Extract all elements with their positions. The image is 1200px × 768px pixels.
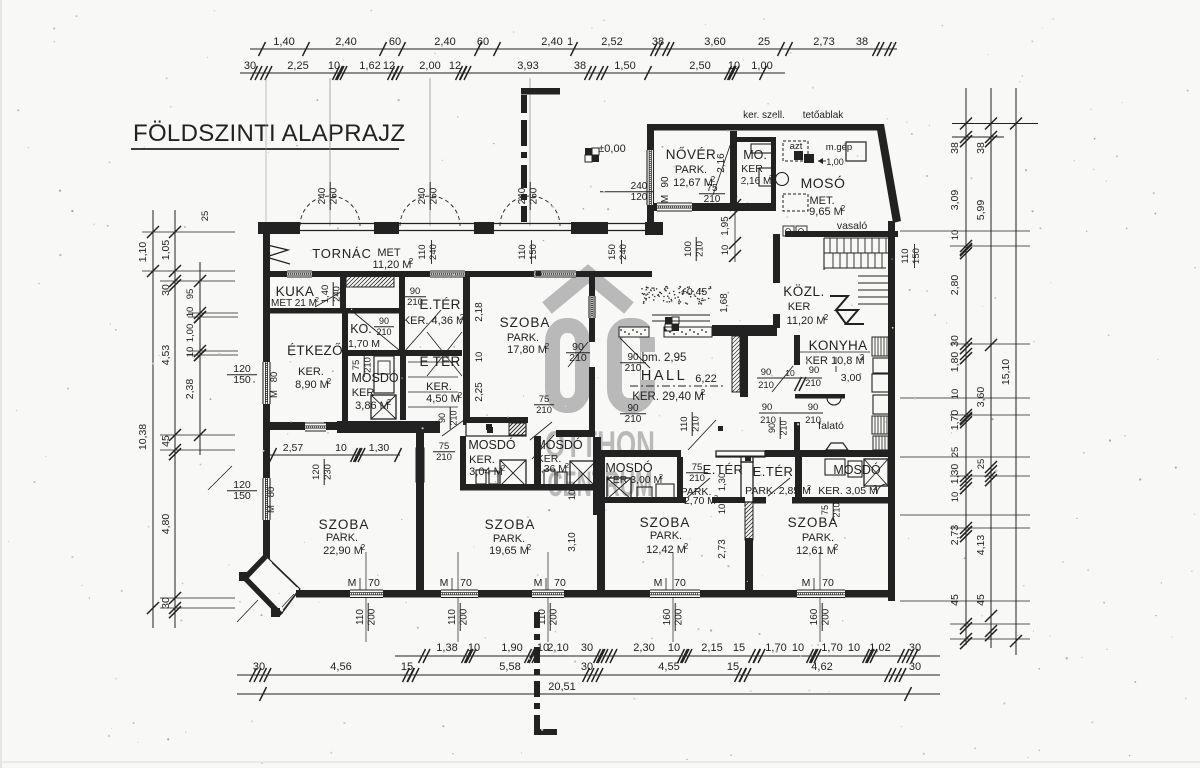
svg-text:4,50 M: 4,50 M	[426, 393, 460, 405]
svg-text:240: 240	[417, 187, 428, 204]
svg-text:HALL: HALL	[641, 368, 687, 384]
svg-text:2,73: 2,73	[717, 539, 728, 559]
svg-text:120: 120	[233, 363, 251, 375]
svg-text:2: 2	[873, 483, 877, 492]
svg-text:15: 15	[727, 661, 739, 673]
svg-text:38: 38	[949, 142, 961, 154]
svg-text:m.gép: m.gép	[826, 142, 852, 153]
svg-text:1,80: 1,80	[949, 352, 961, 373]
svg-text:110: 110	[417, 244, 428, 259]
svg-text:1,70: 1,70	[821, 642, 842, 654]
svg-text:2: 2	[501, 464, 506, 473]
svg-text:75: 75	[820, 505, 830, 515]
svg-text:10: 10	[950, 389, 961, 400]
svg-text:10: 10	[335, 442, 347, 454]
svg-text:PARK.: PARK.	[650, 530, 682, 542]
svg-text:KONYHA: KONYHA	[809, 338, 868, 353]
svg-text:2,73: 2,73	[949, 525, 961, 546]
svg-text:ÉTKEZŐ: ÉTKEZŐ	[287, 343, 343, 358]
svg-text:2: 2	[387, 398, 392, 407]
svg-text:10,38: 10,38	[137, 424, 149, 450]
svg-text:PARK.: PARK.	[675, 164, 707, 176]
svg-text:110: 110	[537, 609, 548, 625]
svg-text:45: 45	[160, 435, 172, 447]
svg-text:1,10: 1,10	[137, 242, 149, 263]
svg-text:PARK.: PARK.	[507, 332, 539, 344]
svg-text:2,40: 2,40	[541, 36, 562, 48]
svg-text:KUKA: KUKA	[276, 284, 315, 299]
svg-text:70: 70	[368, 577, 380, 589]
svg-text:2,00: 2,00	[419, 60, 440, 72]
svg-text:bm. 2,95: bm. 2,95	[642, 352, 687, 364]
svg-text:KÖZL.: KÖZL.	[783, 284, 825, 299]
svg-text:210: 210	[407, 297, 423, 308]
svg-text:160: 160	[662, 608, 673, 625]
svg-text:10: 10	[950, 492, 961, 503]
svg-text:5,99: 5,99	[975, 200, 987, 221]
svg-text:70: 70	[554, 577, 566, 589]
svg-text:2,16 M: 2,16 M	[741, 176, 772, 187]
svg-text:KO.: KO.	[350, 322, 372, 336]
svg-text:2: 2	[460, 313, 465, 322]
svg-text:110: 110	[517, 244, 528, 259]
svg-text:3,60: 3,60	[704, 36, 725, 48]
svg-text:12: 12	[449, 60, 461, 72]
svg-text:210: 210	[625, 363, 642, 374]
svg-text:PARK.: PARK.	[326, 532, 358, 544]
svg-text:75: 75	[351, 360, 362, 371]
svg-text:15: 15	[733, 642, 745, 654]
svg-text:E.TÉR: E.TÉR	[753, 464, 794, 479]
svg-text:240: 240	[631, 181, 648, 192]
svg-text:120: 120	[311, 464, 322, 480]
svg-text:2: 2	[361, 543, 366, 552]
svg-text:75: 75	[539, 394, 550, 405]
svg-text:1,70: 1,70	[949, 410, 961, 431]
svg-text:100: 100	[683, 241, 694, 257]
svg-text:25: 25	[200, 211, 211, 222]
svg-text:M: M	[440, 577, 449, 589]
svg-text:150: 150	[911, 248, 922, 264]
svg-text:10: 10	[328, 60, 340, 72]
svg-text:±0,00: ±0,00	[598, 143, 625, 155]
svg-text:1,30: 1,30	[717, 473, 728, 492]
svg-text:30: 30	[949, 335, 961, 347]
svg-text:80: 80	[266, 487, 277, 498]
svg-text:120: 120	[631, 192, 648, 203]
svg-text:2,40: 2,40	[335, 36, 356, 48]
svg-text:10: 10	[848, 642, 860, 654]
svg-text:3,60: 3,60	[975, 387, 987, 408]
svg-text:KER 10,8 M: KER 10,8 M	[805, 355, 864, 367]
svg-text:2,70 M: 2,70 M	[684, 495, 716, 507]
svg-text:2,57: 2,57	[283, 442, 304, 454]
svg-text:38: 38	[856, 36, 868, 48]
svg-text:10: 10	[567, 490, 578, 501]
svg-text:TORNÁC: TORNÁC	[312, 246, 371, 261]
svg-text:4,56: 4,56	[330, 661, 351, 673]
svg-text:SZOBA: SZOBA	[640, 515, 691, 530]
svg-text:11,20 M: 11,20 M	[787, 315, 826, 327]
svg-text:1,50: 1,50	[614, 60, 635, 72]
svg-text:2: 2	[834, 543, 839, 552]
svg-text:2: 2	[684, 542, 689, 551]
svg-text:E.TÉR: E.TÉR	[419, 297, 460, 312]
svg-text:MET: MET	[377, 247, 401, 259]
svg-text:2,30: 2,30	[633, 642, 654, 654]
svg-text:NŐVÉR: NŐVÉR	[666, 147, 717, 162]
svg-text:210: 210	[376, 327, 391, 337]
svg-text:2: 2	[714, 493, 718, 502]
svg-text:M: M	[654, 577, 663, 589]
svg-text:1,38: 1,38	[436, 642, 457, 654]
svg-text:15,10: 15,10	[1000, 359, 1012, 385]
svg-text:160: 160	[809, 608, 820, 625]
svg-text:KER.: KER.	[469, 454, 495, 466]
svg-text:95: 95	[185, 289, 196, 300]
svg-text:1,05: 1,05	[160, 240, 172, 261]
svg-text:90: 90	[761, 367, 772, 378]
svg-text:10: 10	[720, 245, 731, 256]
svg-text:90: 90	[762, 402, 773, 413]
svg-text:2: 2	[860, 353, 865, 362]
svg-text:10: 10	[717, 504, 728, 515]
svg-text:90: 90	[627, 403, 639, 414]
svg-text:210: 210	[569, 352, 587, 364]
svg-text:2: 2	[545, 342, 550, 351]
svg-text:150: 150	[607, 244, 618, 260]
svg-text:6,22: 6,22	[695, 373, 716, 385]
svg-text:M: M	[802, 577, 811, 589]
svg-text:1: 1	[567, 36, 573, 48]
svg-text:2,38: 2,38	[184, 379, 196, 400]
svg-text:2,52: 2,52	[601, 36, 622, 48]
svg-text:3,86 M: 3,86 M	[355, 400, 389, 412]
svg-text:MOSDÓ: MOSDÓ	[468, 437, 516, 452]
svg-text:22,90 M: 22,90 M	[323, 545, 363, 557]
svg-text:2,80: 2,80	[949, 275, 961, 296]
svg-text:4,53: 4,53	[160, 345, 172, 366]
svg-text:1,90: 1,90	[501, 642, 522, 654]
svg-text:2: 2	[824, 313, 829, 322]
svg-text:210: 210	[536, 405, 552, 416]
svg-text:110: 110	[355, 609, 366, 625]
svg-text:20,51: 20,51	[548, 681, 576, 693]
svg-text:10: 10	[668, 642, 680, 654]
svg-text:2,50: 2,50	[689, 60, 710, 72]
svg-text:12,61 M: 12,61 M	[796, 545, 836, 557]
svg-text:2,15: 2,15	[701, 642, 722, 654]
svg-text:90: 90	[808, 402, 819, 413]
svg-text:1,68: 1,68	[719, 293, 730, 313]
svg-text:MO.: MO.	[743, 148, 767, 162]
svg-text:10: 10	[185, 307, 196, 318]
svg-text:2: 2	[315, 297, 319, 304]
svg-text:70: 70	[460, 577, 472, 589]
svg-text:38: 38	[652, 36, 664, 48]
svg-text:110: 110	[447, 609, 458, 625]
svg-text:90: 90	[437, 413, 447, 423]
svg-text:210: 210	[758, 380, 774, 391]
svg-text:M: M	[269, 390, 280, 398]
svg-text:KER. 3,05 M: KER. 3,05 M	[818, 485, 878, 497]
svg-text:17,80 M: 17,80 M	[507, 344, 547, 356]
svg-text:MET 21 M: MET 21 M	[271, 298, 317, 309]
svg-text:10: 10	[792, 642, 804, 654]
svg-text:M: M	[660, 195, 671, 203]
svg-text:2,73: 2,73	[813, 36, 834, 48]
svg-text:MOSDÓ: MOSDÓ	[535, 437, 583, 452]
svg-text:38: 38	[574, 60, 586, 72]
svg-text:60: 60	[389, 36, 401, 48]
svg-text:30: 30	[244, 60, 256, 72]
svg-text:30: 30	[581, 642, 593, 654]
svg-text:70: 70	[674, 577, 686, 589]
svg-text:10: 10	[785, 368, 795, 378]
svg-text:PARK.: PARK.	[802, 532, 834, 544]
svg-text:M: M	[348, 577, 357, 589]
svg-text:210: 210	[704, 194, 721, 205]
svg-text:+0,45: +0,45	[681, 286, 708, 298]
svg-text:11,20 M: 11,20 M	[373, 259, 412, 271]
svg-text:90: 90	[572, 341, 584, 353]
svg-text:30: 30	[160, 284, 172, 296]
svg-text:3,10: 3,10	[567, 532, 578, 552]
svg-text:30: 30	[909, 642, 921, 654]
svg-text:25: 25	[950, 447, 961, 458]
svg-text:2,40: 2,40	[434, 36, 455, 48]
svg-text:45: 45	[949, 594, 961, 606]
svg-text:M: M	[534, 577, 543, 589]
svg-text:2,18: 2,18	[474, 302, 485, 322]
svg-text:2: 2	[565, 461, 569, 470]
svg-text:2: 2	[841, 204, 846, 213]
svg-text:2,25: 2,25	[287, 60, 308, 72]
svg-text:4,80: 4,80	[160, 514, 172, 535]
svg-text:PARK.: PARK.	[493, 533, 525, 545]
svg-text:9,65 M: 9,65 M	[809, 206, 843, 218]
svg-text:38: 38	[975, 142, 987, 154]
svg-text:ker. szell.: ker. szell.	[743, 110, 785, 121]
svg-text:4,13: 4,13	[975, 535, 987, 556]
svg-text:210: 210	[689, 473, 705, 484]
svg-text:E TÉR: E TÉR	[419, 354, 460, 369]
svg-text:SZOBA: SZOBA	[319, 517, 370, 532]
svg-text:45: 45	[975, 594, 987, 606]
svg-text:8,90 M: 8,90 M	[295, 379, 329, 391]
svg-text:3,36 M: 3,36 M	[535, 463, 567, 475]
svg-text:1,30: 1,30	[949, 464, 961, 485]
svg-text:2: 2	[527, 543, 532, 552]
svg-text:90: 90	[410, 286, 421, 297]
svg-text:1,02: 1,02	[869, 642, 890, 654]
svg-text:KER.: KER.	[298, 366, 324, 378]
svg-text:30: 30	[581, 661, 593, 673]
svg-text:110: 110	[679, 416, 690, 431]
svg-text:2: 2	[807, 483, 811, 492]
svg-text:150: 150	[528, 244, 539, 260]
svg-text:1,62: 1,62	[359, 60, 380, 72]
svg-text:210: 210	[625, 414, 642, 425]
svg-text:120: 120	[233, 479, 251, 491]
svg-text:FÖLDSZINTI ALAPRAJZ: FÖLDSZINTI ALAPRAJZ	[133, 120, 405, 147]
svg-text:90: 90	[767, 423, 777, 433]
svg-text:90: 90	[660, 176, 671, 188]
svg-text:75: 75	[706, 183, 718, 194]
svg-text:80: 80	[269, 372, 280, 383]
svg-text:1,70 M: 1,70 M	[348, 338, 380, 350]
svg-text:2: 2	[409, 257, 414, 266]
svg-text:2,10: 2,10	[547, 642, 568, 654]
svg-text:110: 110	[900, 248, 911, 263]
svg-text:3,04 M: 3,04 M	[469, 466, 503, 478]
svg-text:70: 70	[822, 577, 834, 589]
svg-text:10: 10	[728, 60, 740, 72]
svg-text:3,09: 3,09	[949, 190, 961, 211]
svg-text:falató: falató	[818, 420, 844, 432]
svg-text:MOSÓ: MOSÓ	[801, 175, 846, 191]
svg-text:KER. 29,40 M: KER. 29,40 M	[632, 391, 704, 403]
svg-text:240: 240	[317, 187, 328, 204]
svg-text:75: 75	[439, 441, 450, 452]
svg-text:4,62: 4,62	[811, 661, 832, 673]
svg-text:90: 90	[627, 352, 639, 363]
svg-text:90: 90	[379, 316, 389, 326]
svg-text:2: 2	[701, 388, 706, 397]
svg-text:3,00: 3,00	[841, 372, 862, 384]
svg-text:4,55: 4,55	[658, 661, 679, 673]
svg-text:SZOBA: SZOBA	[485, 517, 536, 532]
svg-text:1,30: 1,30	[369, 442, 390, 454]
svg-text:KER 3,00 M: KER 3,00 M	[606, 474, 663, 486]
svg-text:PARK. 2,85 M: PARK. 2,85 M	[745, 485, 811, 497]
svg-text:vasaló: vasaló	[837, 220, 868, 232]
svg-text:5,58: 5,58	[499, 661, 520, 673]
svg-text:15: 15	[401, 661, 413, 673]
svg-text:25: 25	[758, 36, 770, 48]
svg-text:210: 210	[436, 452, 452, 463]
svg-text:150: 150	[233, 490, 251, 502]
svg-text:1,00: 1,00	[751, 60, 772, 72]
svg-text:MOSDÓ: MOSDÓ	[351, 370, 399, 385]
svg-text:12: 12	[383, 60, 395, 72]
svg-text:12,42 M: 12,42 M	[646, 544, 686, 556]
svg-text:10: 10	[474, 352, 485, 363]
svg-text:2,16: 2,16	[716, 153, 727, 173]
svg-text:30: 30	[253, 661, 265, 673]
svg-text:1,00: 1,00	[826, 157, 844, 167]
svg-text:30: 30	[160, 597, 172, 609]
svg-text:60: 60	[477, 36, 489, 48]
svg-text:1,40: 1,40	[273, 36, 294, 48]
svg-text:KER. 4,36 M: KER. 4,36 M	[403, 315, 465, 327]
svg-text:KER: KER	[788, 301, 811, 313]
svg-text:75: 75	[692, 462, 703, 473]
svg-text:M: M	[266, 505, 277, 513]
svg-text:3,93: 3,93	[517, 60, 538, 72]
svg-text:2: 2	[769, 175, 773, 182]
svg-text:2: 2	[458, 391, 463, 400]
svg-text:10: 10	[950, 230, 961, 241]
svg-text:19,65 M: 19,65 M	[489, 545, 529, 557]
svg-text:KER: KER	[352, 387, 375, 399]
svg-text:2,25: 2,25	[474, 382, 485, 402]
svg-text:SZOBA: SZOBA	[500, 315, 551, 330]
svg-text:150: 150	[233, 374, 251, 386]
svg-text:1,00: 1,00	[185, 324, 196, 343]
svg-text:30: 30	[909, 661, 921, 673]
svg-text:10: 10	[185, 347, 196, 358]
svg-text:240: 240	[428, 244, 439, 260]
svg-text:240: 240	[618, 244, 629, 260]
svg-text:25: 25	[976, 459, 987, 470]
svg-text:azt: azt	[790, 141, 803, 152]
svg-text:10: 10	[468, 642, 480, 654]
svg-text:MOSDÓ: MOSDÓ	[833, 462, 881, 477]
svg-text:KER: KER	[741, 163, 763, 175]
svg-text:2: 2	[659, 472, 663, 481]
svg-text:2: 2	[327, 377, 332, 386]
svg-text:1,40: 1,40	[320, 285, 331, 304]
svg-text:KER.: KER.	[426, 381, 452, 393]
svg-text:MOSDÓ: MOSDÓ	[605, 460, 653, 475]
svg-text:210: 210	[805, 378, 821, 389]
svg-text:tetőablak: tetőablak	[803, 110, 845, 121]
